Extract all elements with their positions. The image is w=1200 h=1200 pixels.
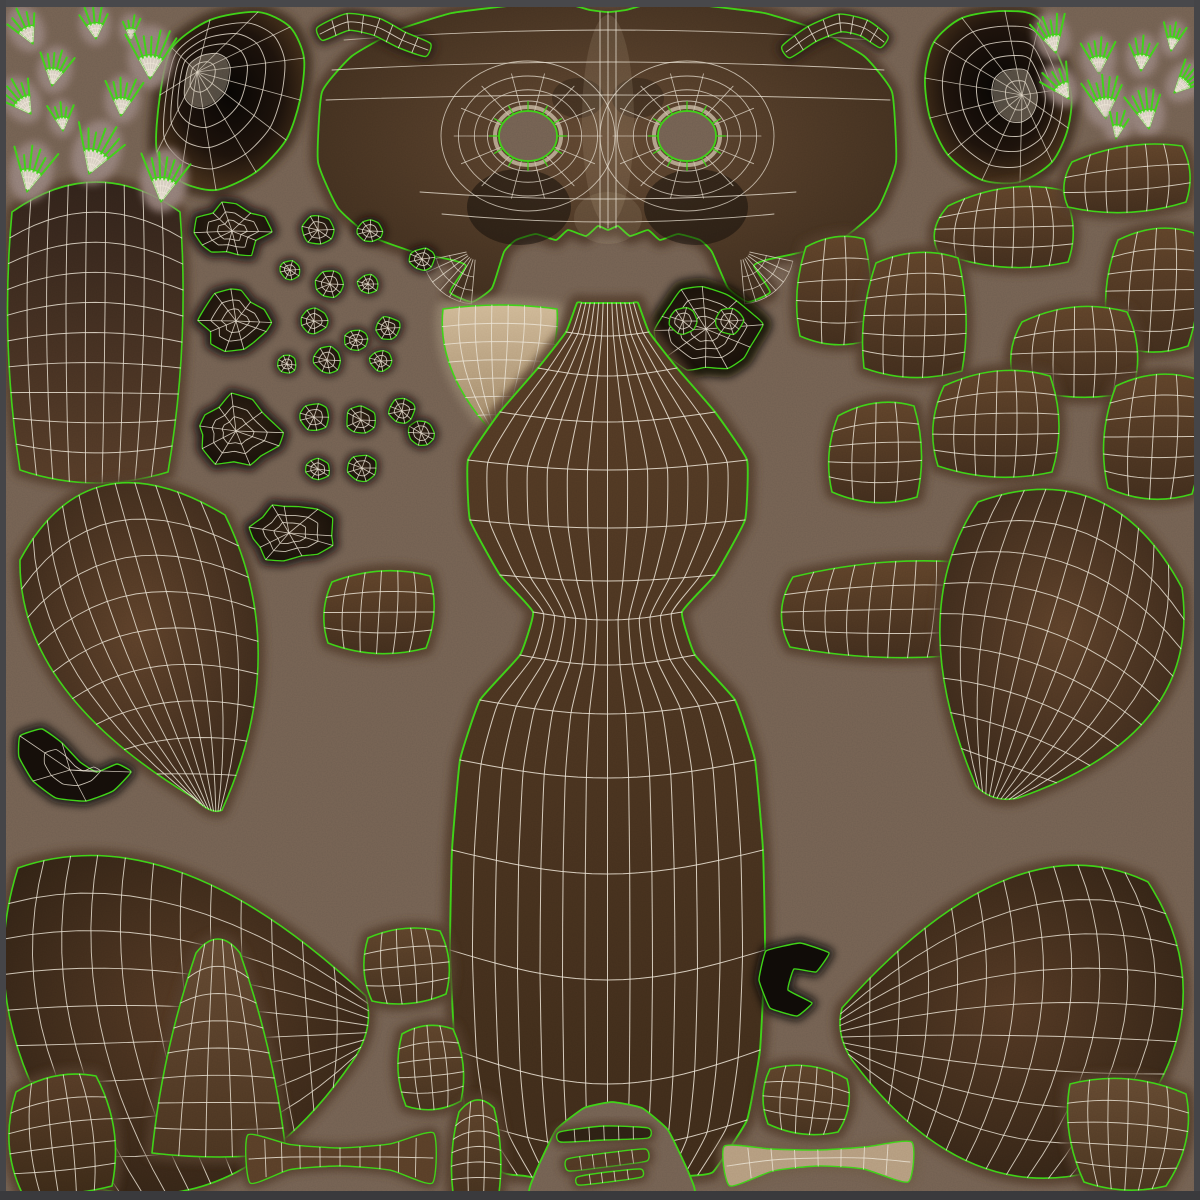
muzzle-pad-left <box>669 308 697 335</box>
toe-pad-9 <box>345 330 368 350</box>
piece-mid-small-2 <box>398 1025 464 1109</box>
toe-pad-14 <box>347 406 375 433</box>
palm-pad-4 <box>249 505 333 561</box>
toe-pad-3 <box>409 248 435 270</box>
piece-right-9 <box>829 402 922 502</box>
toe-pad-15 <box>389 398 415 423</box>
diag-strip-2 <box>576 1169 644 1185</box>
piece-bottom-right-corner <box>1067 1078 1188 1190</box>
piece-right-8 <box>1104 374 1200 499</box>
toe-pad-10 <box>278 355 296 373</box>
toe-pad-16 <box>306 458 330 479</box>
toe-pad-2 <box>357 220 383 242</box>
toe-pad-4 <box>280 261 300 280</box>
piece-right-2 <box>1064 144 1190 213</box>
toe-pad-12 <box>369 351 391 372</box>
piece-bottom-right-small <box>763 1065 849 1134</box>
piece-mid-small-1 <box>364 928 449 1004</box>
toe-pad-5 <box>315 271 343 298</box>
toe-pad-7 <box>301 308 328 334</box>
uv-texture-atlas <box>0 0 1200 1200</box>
toe-pad-6 <box>357 274 378 293</box>
toe-pad-13 <box>300 404 329 431</box>
panel-left-egg <box>8 182 184 483</box>
piece-right-7 <box>933 370 1059 477</box>
toe-pad-8 <box>376 317 400 340</box>
piece-right-6 <box>863 252 967 377</box>
piece-left-shoulder <box>324 571 434 654</box>
sliver-strip <box>557 1126 652 1142</box>
body-torso <box>450 302 765 1184</box>
piece-bottom-left-corner <box>9 1074 116 1194</box>
uv-atlas-canvas <box>0 0 1200 1200</box>
tail-strip <box>451 1100 501 1193</box>
toe-pad-11 <box>313 346 340 373</box>
toe-pad-neck <box>408 421 434 445</box>
toe-pad-17 <box>347 455 376 481</box>
toe-pad-1 <box>302 216 334 244</box>
